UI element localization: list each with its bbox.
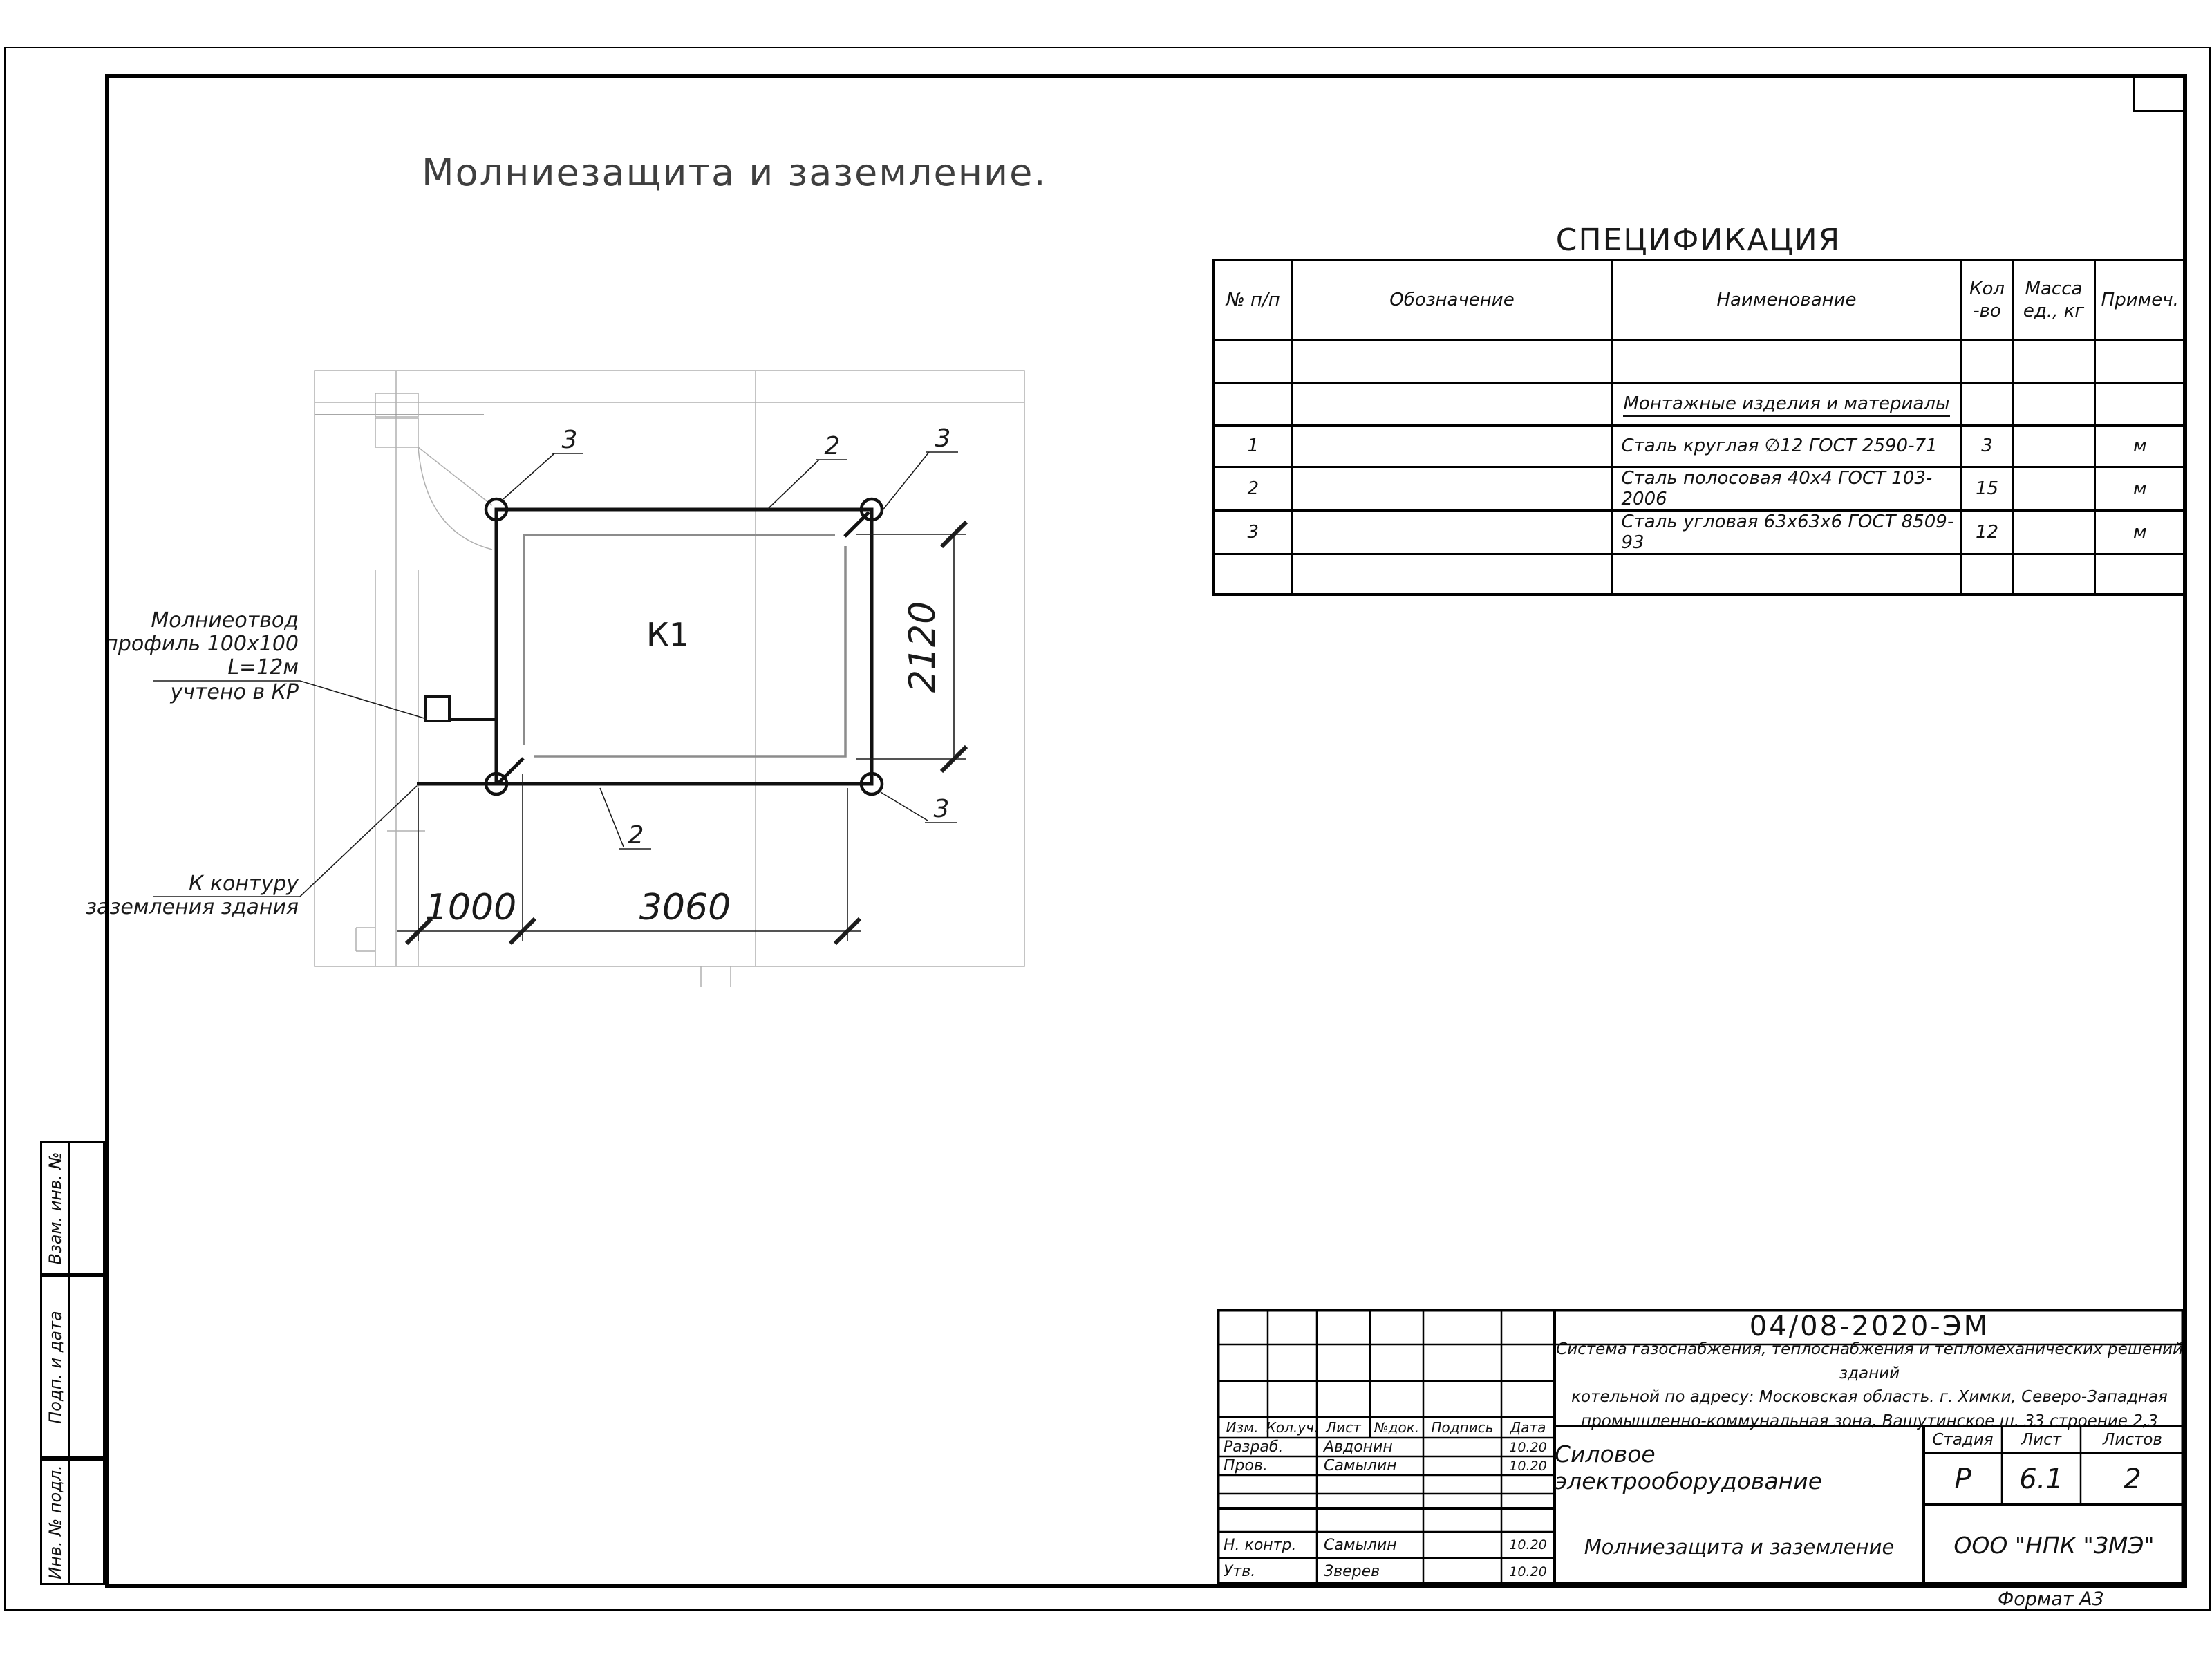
spec-cell-num: 2 (1214, 467, 1292, 510)
title-block: 04/08-2020-ЭМ Система газоснабжения, теп… (1217, 1309, 2184, 1585)
spec-row: 2 Сталь полосовая 40х4 ГОСТ 103-2006 15 … (1214, 467, 2186, 510)
spec-cell-name: Сталь угловая 63х63х6 ГОСТ 8509-93 (1612, 510, 1961, 554)
side-stamp: Взам. инв. № Подп. и дата Инв. № подл. (40, 1141, 105, 1585)
sig-role: Утв. (1217, 1558, 1317, 1585)
format-note: Формат А3 (1998, 1588, 2104, 1610)
rev-col-koluch: Кол.уч. (1268, 1417, 1317, 1438)
spec-row: 1 Сталь круглая ∅12 ГОСТ 2590-71 3 м (1214, 425, 2186, 467)
spec-cell-qty: 15 (1961, 467, 2013, 510)
spec-cell-num: 1 (1214, 425, 1292, 467)
stage-label: Стадия (1924, 1426, 2002, 1453)
spec-cell-qty: 3 (1961, 425, 2013, 467)
spec-table-heading: СПЕЦИФИКАЦИЯ (1212, 223, 2184, 258)
sig-name: Авдонин (1317, 1438, 1423, 1456)
sheet-name: Молниезащита и заземление (1555, 1508, 1924, 1585)
spec-cell-name: Сталь полосовая 40х4 ГОСТ 103-2006 (1612, 467, 1961, 510)
rev-col-podpis: Подпись (1423, 1417, 1501, 1438)
side-stamp-section: Взам. инв. № (40, 1141, 105, 1275)
side-stamp-label: Инв. № подл. (46, 1465, 65, 1580)
sig-date: 10.20 (1501, 1438, 1555, 1456)
spec-cell-mass (2013, 510, 2094, 554)
spec-cell-mass (2013, 425, 2094, 467)
corner-doc-box (2133, 74, 2186, 112)
side-stamp-section: Инв. № подл. (40, 1459, 105, 1585)
spec-header-row: № п/п Обозначение Наименование Кол -во М… (1214, 260, 2186, 340)
spec-empty-row (1214, 554, 2186, 594)
side-stamp-label: Взам. инв. № (46, 1152, 65, 1264)
project-description: Система газоснабжения, теплоснабжения и … (1555, 1346, 2184, 1425)
spec-cell-qty: 12 (1961, 510, 2013, 554)
side-stamp-label-cell: Подп. и дата (42, 1277, 70, 1456)
side-stamp-label: Подп. и дата (46, 1311, 65, 1424)
side-stamp-label-cell: Взам. инв. № (42, 1143, 70, 1273)
sig-role: Разраб. (1217, 1438, 1317, 1456)
spec-col-note: Примеч. (2094, 260, 2186, 340)
sig-date: 10.20 (1501, 1456, 1555, 1475)
rev-col-list: Лист (1317, 1417, 1370, 1438)
sheet-value: 6.1 (2002, 1453, 2081, 1505)
sig-name: Зверев (1317, 1558, 1423, 1585)
rev-col-data: Дата (1501, 1417, 1555, 1438)
spec-cell-note: м (2094, 467, 2186, 510)
spec-empty-row (1214, 340, 2186, 382)
spec-section-header: Монтажные изделия и материалы (1612, 382, 1961, 425)
spec-col-qty: Кол -во (1961, 260, 2013, 340)
spec-col-mass: Масса ед., кг (2013, 260, 2094, 340)
sheets-label: Листов (2081, 1426, 2184, 1453)
company-name: ООО "НПК "ЗМЭ" (1924, 1505, 2184, 1585)
sig-name: Самылин (1317, 1456, 1423, 1475)
spec-row: 3 Сталь угловая 63х63х6 ГОСТ 8509-93 12 … (1214, 510, 2186, 554)
spec-section-row: Монтажные изделия и материалы (1214, 382, 2186, 425)
spec-cell-name: Сталь круглая ∅12 ГОСТ 2590-71 (1612, 425, 1961, 467)
sig-role: Пров. (1217, 1456, 1317, 1475)
rev-col-ndok: №док. (1370, 1417, 1423, 1438)
sig-date: 10.20 (1501, 1532, 1555, 1558)
sig-date: 10.20 (1501, 1558, 1555, 1585)
sheets-value: 2 (2081, 1453, 2184, 1505)
spec-cell-designation (1292, 425, 1612, 467)
sig-role: Н. контр. (1217, 1532, 1317, 1558)
page-title: Молниезащита и заземление. (422, 151, 1047, 194)
spec-cell-note: м (2094, 425, 2186, 467)
spec-cell-designation (1292, 467, 1612, 510)
sig-name: Самылин (1317, 1532, 1423, 1558)
project-name: Силовое электрооборудование (1555, 1426, 1924, 1508)
spec-cell-designation (1292, 510, 1612, 554)
spec-col-name: Наименование (1612, 260, 1961, 340)
spec-cell-note: м (2094, 510, 2186, 554)
spec-cell-num: 3 (1214, 510, 1292, 554)
spec-cell-mass (2013, 467, 2094, 510)
sheet-label: Лист (2002, 1426, 2081, 1453)
side-stamp-section: Подп. и дата (40, 1275, 105, 1459)
rev-col-izm: Изм. (1217, 1417, 1268, 1438)
spec-col-designation: Обозначение (1292, 260, 1612, 340)
stage-value: Р (1924, 1453, 2002, 1505)
drawing-sheet: { "sheet": { "title": "Молниезащита и за… (0, 0, 2212, 1659)
side-stamp-label-cell: Инв. № подл. (42, 1461, 70, 1583)
spec-col-num: № п/п (1214, 260, 1292, 340)
spec-table: № п/п Обозначение Наименование Кол -во М… (1212, 259, 2187, 596)
